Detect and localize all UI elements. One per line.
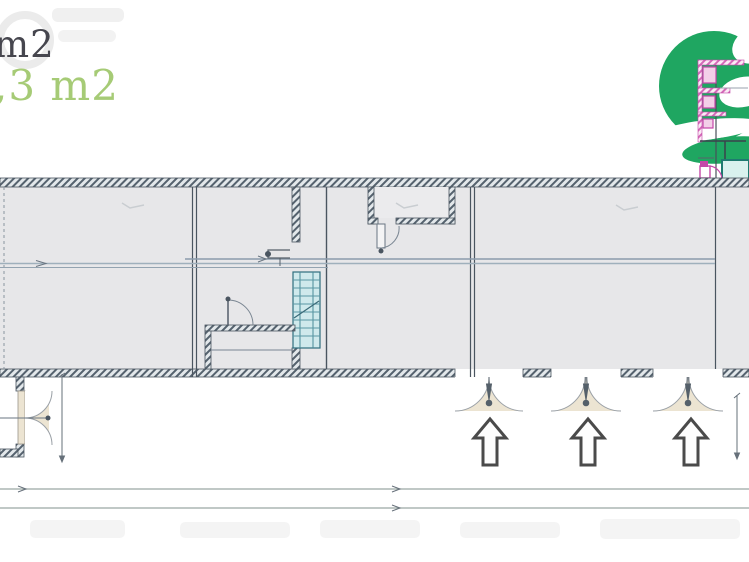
magenta-door	[700, 166, 710, 178]
stairs	[293, 272, 320, 348]
floorplan-drawing: m2 ,3 m2	[0, 0, 749, 562]
floorplan-screenshot: m2 ,3 m2	[0, 0, 749, 562]
entrance-doors	[455, 377, 723, 411]
bottom-dimension-lines	[0, 486, 749, 511]
entrance-arrow-icon	[572, 419, 604, 465]
entrance-arrows	[474, 419, 707, 465]
dimension-line-vertical	[59, 373, 65, 462]
bottom-exterior-wall	[0, 369, 749, 377]
entrance-arrow-icon	[474, 419, 506, 465]
area-label-highlight: ,3 m2	[0, 61, 119, 110]
top-exterior-wall	[0, 178, 749, 187]
faint-smudges	[30, 519, 740, 539]
area-label-total: m2	[0, 23, 55, 66]
door-leaf	[377, 224, 385, 248]
vestibule-double-door	[0, 373, 65, 462]
dimension-line-right	[734, 393, 740, 459]
entrance-arrow-icon	[675, 419, 707, 465]
